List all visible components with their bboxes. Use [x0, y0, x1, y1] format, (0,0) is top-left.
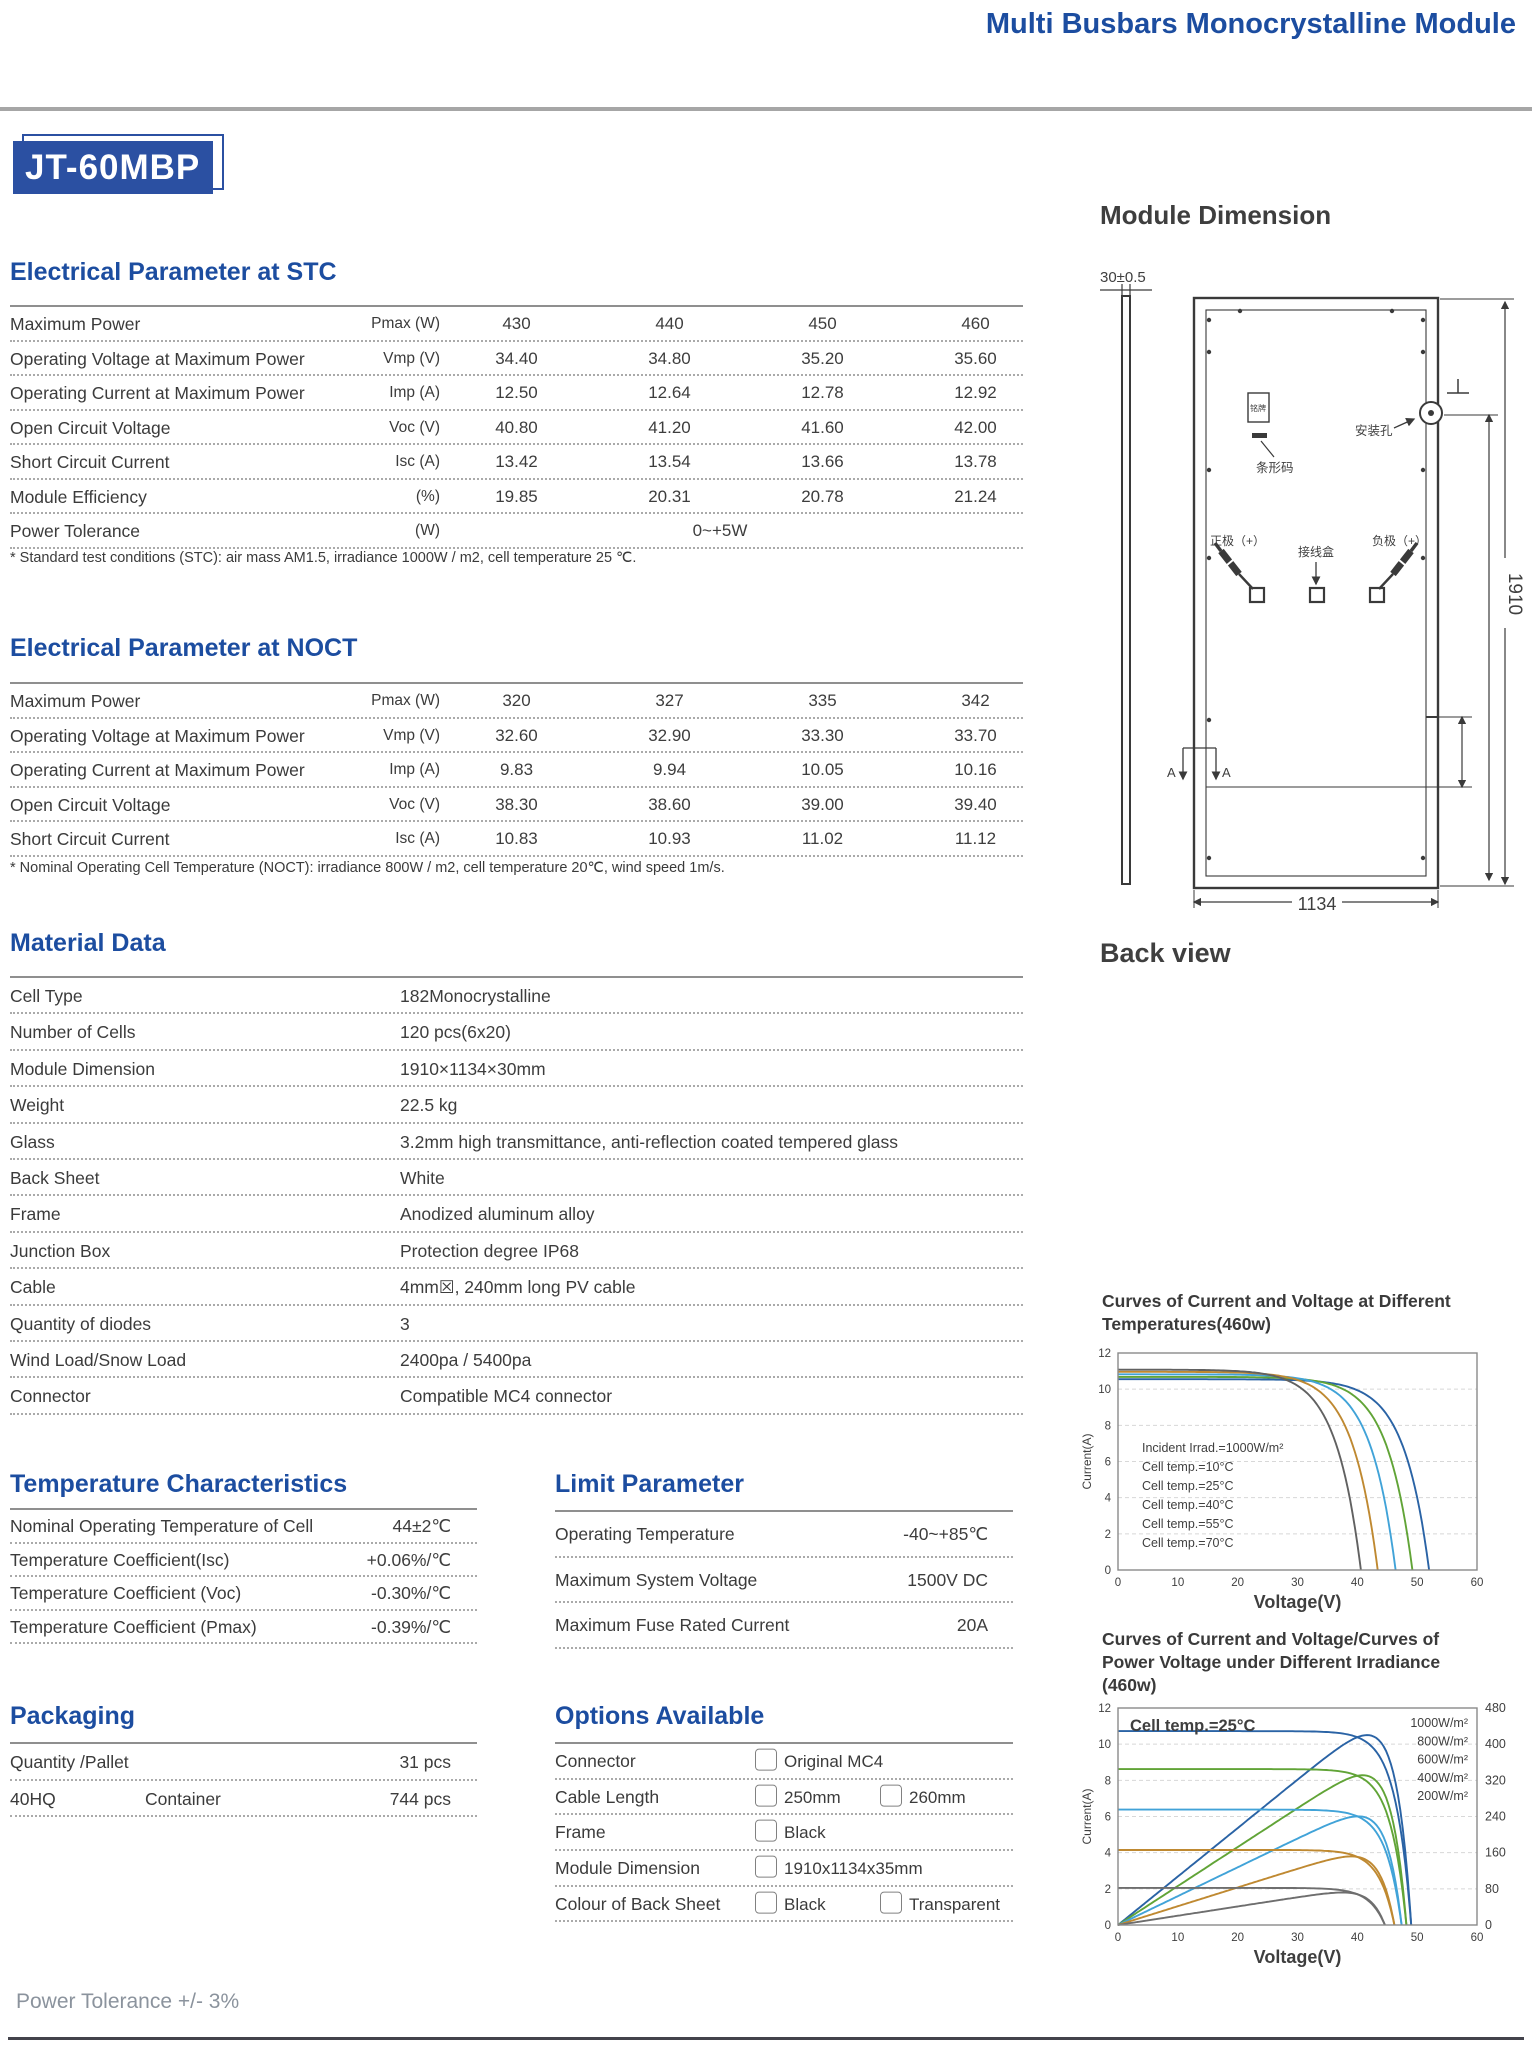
stc-row: Short Circuit CurrentIsc (A)13.4213.5413… [10, 445, 1023, 480]
param-value: 10.05 [746, 753, 899, 788]
param-value: 35.60 [899, 342, 1052, 377]
param-label: Open Circuit Voltage [10, 788, 171, 823]
chart-text: Voltage(V) [1254, 1947, 1342, 1967]
svg-text:A: A [1167, 765, 1176, 780]
param-symbol: Voc (V) [310, 788, 440, 823]
section-heading-limit: Limit Parameter [555, 1470, 744, 1499]
chart-text: 8 [1105, 1420, 1111, 1432]
limit-row: Maximum Fuse Rated Current20A [555, 1603, 1013, 1649]
param-label: Operating Current at Maximum Power [10, 376, 305, 411]
chart-text: 800W/m² [1417, 1734, 1468, 1748]
chart-text: 50 [1411, 1577, 1424, 1589]
packaging-table: Quantity /Pallet31 pcs40HQContainer744 p… [10, 1742, 477, 1817]
param-symbol: Pmax (W) [310, 684, 440, 719]
temperature-label: Temperature Coefficient (Voc) [10, 1577, 241, 1611]
packaging-label: 40HQ [10, 1781, 56, 1818]
param-symbol: Vmp (V) [310, 342, 440, 377]
chart-text: 600W/m² [1417, 1753, 1468, 1767]
chart-text: 10 [1171, 1932, 1184, 1944]
temperature-row: Temperature Coefficient(Isc)+0.06%/℃ [10, 1544, 477, 1578]
param-value: 19.85 [440, 480, 593, 515]
param-value: 41.20 [593, 411, 746, 446]
chart-text: 160 [1485, 1846, 1506, 1860]
option-label: Connector [555, 1744, 636, 1780]
temperature-value: -0.39%/℃ [371, 1611, 451, 1645]
stc-tolerance-row: Power Tolerance(W)0~+5W [10, 514, 1023, 549]
material-row: Module Dimension1910×1134×30mm [10, 1051, 1023, 1087]
param-value: 41.60 [746, 411, 899, 446]
param-value: 440 [593, 307, 746, 342]
param-value: 20.31 [593, 480, 746, 515]
power-tolerance-note: Power Tolerance +/- 3% [16, 1990, 239, 2014]
param-label: Short Circuit Current [10, 445, 170, 480]
param-value: 11.02 [746, 822, 899, 857]
temperature-value: 44±2℃ [393, 1510, 451, 1544]
limit-table: Operating Temperature-40~+85℃Maximum Sys… [555, 1510, 1013, 1649]
param-value: 9.94 [593, 753, 746, 788]
section-heading-packaging: Packaging [10, 1702, 135, 1731]
param-value: 430 [440, 307, 593, 342]
back-view-label: Back view [1100, 938, 1232, 968]
noct-footnote: * Nominal Operating Cell Temperature (NO… [10, 860, 725, 876]
param-value: 12.64 [593, 376, 746, 411]
param-value: 20.78 [746, 480, 899, 515]
section-a-marks: A A [1167, 748, 1231, 780]
checkbox-cable-length-2[interactable] [880, 1784, 902, 1806]
header-divider [0, 107, 1532, 111]
chart-text: 0 [1115, 1577, 1121, 1589]
param-label: Short Circuit Current [10, 822, 170, 857]
chart-text: Cell temp.=25°C [1142, 1479, 1234, 1493]
param-value: 460 [899, 307, 1052, 342]
module-outline [1194, 298, 1438, 888]
temperature-label: Temperature Coefficient (Pmax) [10, 1611, 257, 1645]
footer-divider [8, 2037, 1524, 2040]
chart2-title: Curves of Current and Voltage/Curves ofP… [1102, 1628, 1512, 1697]
model-badge: JT-60MBP [13, 141, 213, 194]
param-value: 13.54 [593, 445, 746, 480]
chart-text: Cell temp.=55°C [1142, 1517, 1234, 1531]
options-table: ConnectorOriginal MC4Cable Length250mm26… [555, 1742, 1013, 1922]
chart-text: 10 [1098, 1739, 1111, 1751]
noct-row: Open Circuit VoltageVoc (V)38.3038.6039.… [10, 788, 1023, 823]
options-row: ConnectorOriginal MC4 [555, 1744, 1013, 1780]
section-heading-noct: Electrical Parameter at NOCT [10, 634, 357, 663]
packaging-row: Quantity /Pallet31 pcs [10, 1744, 477, 1781]
stc-row: Operating Current at Maximum PowerImp (A… [10, 376, 1023, 411]
param-symbol: Pmax (W) [310, 307, 440, 342]
chart-text: 40 [1351, 1932, 1364, 1944]
param-label: Module Efficiency [10, 480, 147, 515]
param-value: 11.12 [899, 822, 1052, 857]
packaging-value: 31 pcs [399, 1744, 451, 1781]
param-value: 0~+5W [555, 514, 885, 549]
chart-text: 10 [1171, 1577, 1184, 1589]
limit-value: 20A [957, 1603, 988, 1649]
chart-text: 80 [1485, 1882, 1499, 1896]
param-value: 32.90 [593, 719, 746, 754]
param-label: Open Circuit Voltage [10, 411, 171, 446]
noct-row: Short Circuit CurrentIsc (A)10.8310.9311… [10, 822, 1023, 857]
chart-text: 10 [1098, 1384, 1111, 1396]
chart-text: 0 [1115, 1932, 1121, 1944]
chart-text: Current(A) [1080, 1788, 1094, 1844]
module-side-profile [1122, 296, 1130, 884]
param-symbol: (%) [310, 480, 440, 515]
param-symbol: Isc (A) [310, 445, 440, 480]
material-label: Cable [10, 1269, 56, 1305]
material-label: Back Sheet [10, 1160, 100, 1196]
junction-box-port-1 [1250, 588, 1264, 602]
options-row: FrameBlack [555, 1815, 1013, 1851]
param-label: Maximum Power [10, 684, 140, 719]
stc-row: Open Circuit VoltageVoc (V)40.8041.2041.… [10, 411, 1023, 446]
packaging-row: 40HQContainer744 pcs [10, 1781, 477, 1818]
chart-text: 320 [1485, 1773, 1506, 1787]
material-row: Wind Load/Snow Load2400pa / 5400pa [10, 1342, 1023, 1378]
material-value: Compatible MC4 connector [400, 1378, 612, 1414]
material-row: ConnectorCompatible MC4 connector [10, 1378, 1023, 1414]
stc-row: Maximum PowerPmax (W)430440450460 [10, 307, 1023, 342]
limit-value: 1500V DC [907, 1558, 988, 1604]
stc-row: Module Efficiency(%)19.8520.3120.7821.24 [10, 480, 1023, 515]
stc-row: Operating Voltage at Maximum PowerVmp (V… [10, 342, 1023, 377]
chart-text: 2 [1105, 1529, 1111, 1541]
iv-curve [1118, 1769, 1406, 1925]
param-symbol: Imp (A) [310, 376, 440, 411]
option-choice: 1910x1134x35mm [784, 1851, 923, 1887]
param-value: 39.00 [746, 788, 899, 823]
section-heading-options: Options Available [555, 1702, 764, 1731]
param-value: 13.42 [440, 445, 593, 480]
packaging-sublabel: Container [145, 1781, 221, 1818]
param-value: 34.80 [593, 342, 746, 377]
power-curve [1118, 1893, 1385, 1926]
svg-text:A: A [1222, 765, 1231, 780]
noct-row: Operating Current at Maximum PowerImp (A… [10, 753, 1023, 788]
param-value: 35.20 [746, 342, 899, 377]
packaging-value: 744 pcs [390, 1781, 451, 1818]
param-value: 38.30 [440, 788, 593, 823]
chart1-title-line: Temperatures(460w) [1102, 1313, 1502, 1336]
material-label: Weight [10, 1087, 64, 1123]
material-row: FrameAnodized aluminum alloy [10, 1196, 1023, 1232]
checkbox-frame-1[interactable] [755, 1820, 777, 1842]
option-choice: Black [784, 1887, 826, 1923]
chart1-title-line: Curves of Current and Voltage at Differe… [1102, 1290, 1502, 1313]
limit-label: Maximum Fuse Rated Current [555, 1603, 789, 1649]
chart-text: 240 [1485, 1810, 1506, 1824]
chart-text: 0 [1485, 1918, 1492, 1932]
chart-text: 30 [1291, 1577, 1304, 1589]
option-choice: Original MC4 [784, 1744, 883, 1780]
mounting-hole-label: 安装孔 [1355, 423, 1393, 438]
param-value: 9.83 [440, 753, 593, 788]
temperature-label: Nominal Operating Temperature of Cell [10, 1510, 313, 1544]
chart-text: 12 [1098, 1703, 1111, 1715]
temperature-value: -0.30%/℃ [371, 1577, 451, 1611]
param-label: Operating Current at Maximum Power [10, 753, 305, 788]
param-value: 33.70 [899, 719, 1052, 754]
param-symbol: Vmp (V) [310, 719, 440, 754]
param-value: 33.30 [746, 719, 899, 754]
material-row: Glass3.2mm high transmittance, anti-refl… [10, 1124, 1023, 1160]
chart-text: Cell temp.=70°C [1142, 1536, 1234, 1550]
param-symbol: (W) [310, 514, 440, 549]
material-label: Glass [10, 1124, 55, 1160]
param-label: Operating Voltage at Maximum Power [10, 342, 305, 377]
checkbox-connector-1[interactable] [755, 1749, 777, 1771]
chart-text: 6 [1105, 1457, 1111, 1469]
material-row: Cable4mm☒, 240mm long PV cable [10, 1269, 1023, 1305]
material-label: Number of Cells [10, 1014, 135, 1050]
param-value: 10.16 [899, 753, 1052, 788]
param-value: 10.83 [440, 822, 593, 857]
chart-text: 480 [1485, 1701, 1506, 1715]
checkbox-cable-length-1[interactable] [755, 1784, 777, 1806]
param-label: Maximum Power [10, 307, 140, 342]
option-choice: 250mm [784, 1780, 841, 1816]
material-value: Anodized aluminum alloy [400, 1196, 595, 1232]
module-inner-frame [1206, 310, 1426, 876]
option-label: Module Dimension [555, 1851, 700, 1887]
positive-connector [1215, 543, 1253, 589]
param-value: 450 [746, 307, 899, 342]
chart2-title-line: Power Voltage under Different Irradiance [1102, 1651, 1512, 1674]
chart-text: 400W/m² [1417, 1771, 1468, 1785]
chart-text: 8 [1105, 1775, 1111, 1787]
chart-text: 60 [1471, 1577, 1484, 1589]
material-label: Quantity of diodes [10, 1306, 151, 1342]
material-value: Protection degree IP68 [400, 1233, 579, 1269]
option-choice: Transparent [909, 1887, 1000, 1923]
param-value: 10.93 [593, 822, 746, 857]
param-value: 320 [440, 684, 593, 719]
chart-text: Voltage(V) [1254, 1592, 1342, 1612]
iv-irradiance-chart: 0246810120102030405060080160240320400480… [1060, 1695, 1532, 1975]
param-value: 38.60 [593, 788, 746, 823]
negative-connector [1379, 543, 1417, 589]
param-value: 12.78 [746, 376, 899, 411]
option-label: Frame [555, 1815, 606, 1851]
option-label: Colour of Back Sheet [555, 1887, 720, 1923]
checkbox-colour-of-back-sheet-2[interactable] [880, 1891, 902, 1913]
options-row: Cable Length250mm260mm [555, 1780, 1013, 1816]
chart2-title-line: Curves of Current and Voltage/Curves of [1102, 1628, 1512, 1651]
stc-footnote: * Standard test conditions (STC): air ma… [10, 550, 636, 566]
material-row: Quantity of diodes3 [10, 1306, 1023, 1342]
section-heading-material: Material Data [10, 929, 166, 958]
nameplate-label: 铭牌 [1250, 403, 1266, 413]
height-dimension-label: 1910 [1504, 573, 1525, 615]
material-label: Connector [10, 1378, 91, 1414]
param-value: 342 [899, 684, 1052, 719]
junction-box-label: 接线盒 [1298, 544, 1334, 559]
chart2-title-line: (460w) [1102, 1674, 1512, 1697]
noct-row: Operating Voltage at Maximum PowerVmp (V… [10, 719, 1023, 754]
junction-box-port-2 [1310, 588, 1324, 602]
chart-text: 200W/m² [1417, 1789, 1468, 1803]
checkbox-module-dimension-1[interactable] [755, 1856, 777, 1878]
param-value: 42.00 [899, 411, 1052, 446]
chart-text: 60 [1471, 1932, 1484, 1944]
chart-text: 50 [1411, 1932, 1424, 1944]
param-value: 335 [746, 684, 899, 719]
material-value: 3.2mm high transmittance, anti-reflectio… [400, 1124, 898, 1160]
chart-text: Incident Irrad.=1000W/m² [1142, 1441, 1283, 1455]
negative-pole-label: 负极（+） [1372, 534, 1427, 548]
checkbox-colour-of-back-sheet-1[interactable] [755, 1891, 777, 1913]
section-heading-stc: Electrical Parameter at STC [10, 258, 337, 287]
thickness-dimension-label: 30±0.5 [1100, 269, 1146, 286]
chart-text: Cell temp.=10°C [1142, 1460, 1234, 1474]
options-row: Colour of Back SheetBlackTransparent [555, 1887, 1013, 1923]
material-value: 4mm☒, 240mm long PV cable [400, 1269, 636, 1305]
barcode-label: 条形码 [1256, 461, 1294, 475]
material-table: Cell Type182MonocrystallineNumber of Cel… [10, 976, 1023, 1415]
barcode-mark [1252, 433, 1267, 438]
material-row: Weight22.5 kg [10, 1087, 1023, 1123]
material-row: Junction BoxProtection degree IP68 [10, 1233, 1023, 1269]
iv-temperature-chart: 0246810120102030405060Voltage(V)Current(… [1060, 1340, 1532, 1625]
chart1-title: Curves of Current and Voltage at Differe… [1102, 1290, 1502, 1336]
chart-text: 40 [1351, 1577, 1364, 1589]
param-value: 12.50 [440, 376, 593, 411]
param-value: 39.40 [899, 788, 1052, 823]
packaging-label: Quantity /Pallet [10, 1744, 129, 1781]
temperature-table: Nominal Operating Temperature of Cell44±… [10, 1508, 477, 1644]
param-value: 327 [593, 684, 746, 719]
param-value: 40.80 [440, 411, 593, 446]
limit-row: Operating Temperature-40~+85℃ [555, 1512, 1013, 1558]
material-label: Cell Type [10, 978, 83, 1014]
junction-box-port-3 [1370, 588, 1384, 602]
param-value: 21.24 [899, 480, 1052, 515]
datasheet-page: Multi Busbars Monocrystalline Module JT-… [0, 0, 1532, 2048]
temperature-label: Temperature Coefficient(Isc) [10, 1544, 230, 1578]
chart-text: 1000W/m² [1410, 1716, 1468, 1730]
param-label: Power Tolerance [10, 514, 140, 549]
stc-table: Maximum PowerPmax (W)430440450460Operati… [10, 305, 1023, 549]
material-label: Junction Box [10, 1233, 110, 1269]
width-dimension-label: 1134 [1298, 894, 1337, 914]
chart-text: 2 [1105, 1884, 1111, 1896]
param-symbol: Imp (A) [310, 753, 440, 788]
material-label: Frame [10, 1196, 61, 1232]
material-row: Cell Type182Monocrystalline [10, 978, 1023, 1014]
material-row: Number of Cells120 pcs(6x20) [10, 1014, 1023, 1050]
chart-text: Cell temp.=25°C [1130, 1717, 1255, 1735]
option-choice: Black [784, 1815, 826, 1851]
chart-text: 0 [1105, 1920, 1111, 1932]
module-dimension-drawing: 30±0.5 铭牌 条形码 [1060, 190, 1532, 990]
option-label: Cable Length [555, 1780, 659, 1816]
temperature-value: +0.06%/℃ [367, 1544, 451, 1578]
section-heading-temperature: Temperature Characteristics [10, 1470, 347, 1499]
material-value: 120 pcs(6x20) [400, 1014, 511, 1050]
chart-text: 4 [1105, 1493, 1112, 1505]
temperature-row: Nominal Operating Temperature of Cell44±… [10, 1510, 477, 1544]
material-value: 22.5 kg [400, 1087, 457, 1123]
chart-text: 12 [1098, 1348, 1111, 1360]
noct-table: Maximum PowerPmax (W)320327335342Operati… [10, 682, 1023, 857]
param-value: 34.40 [440, 342, 593, 377]
chart-text: 4 [1105, 1848, 1112, 1860]
chart-text: Cell temp.=40°C [1142, 1498, 1234, 1512]
iv-curve [1118, 1810, 1402, 1925]
option-choice: 260mm [909, 1780, 966, 1816]
param-label: Operating Voltage at Maximum Power [10, 719, 305, 754]
material-label: Module Dimension [10, 1051, 155, 1087]
material-row: Back SheetWhite [10, 1160, 1023, 1196]
param-symbol: Voc (V) [310, 411, 440, 446]
limit-value: -40~+85℃ [903, 1512, 988, 1558]
frame-dots [1207, 309, 1425, 860]
limit-row: Maximum System Voltage1500V DC [555, 1558, 1013, 1604]
chart-text: 6 [1105, 1812, 1111, 1824]
param-symbol: Isc (A) [310, 822, 440, 857]
limit-label: Maximum System Voltage [555, 1558, 757, 1604]
chart-text: 20 [1231, 1577, 1244, 1589]
chart-text: Current(A) [1080, 1433, 1094, 1489]
chart-text: 400 [1485, 1737, 1506, 1751]
param-value: 13.66 [746, 445, 899, 480]
param-value: 12.92 [899, 376, 1052, 411]
chart-text: 30 [1291, 1932, 1304, 1944]
material-value: 1910×1134×30mm [400, 1051, 546, 1087]
chart-text: 20 [1231, 1932, 1244, 1944]
options-row: Module Dimension1910x1134x35mm [555, 1851, 1013, 1887]
page-title: Multi Busbars Monocrystalline Module [986, 8, 1516, 41]
material-value: 182Monocrystalline [400, 978, 551, 1014]
material-value: 3 [400, 1306, 410, 1342]
limit-label: Operating Temperature [555, 1512, 735, 1558]
chart-text: 0 [1105, 1565, 1111, 1577]
material-value: White [400, 1160, 445, 1196]
temperature-row: Temperature Coefficient (Pmax)-0.39%/℃ [10, 1611, 477, 1645]
param-value: 32.60 [440, 719, 593, 754]
param-value: 13.78 [899, 445, 1052, 480]
material-value: 2400pa / 5400pa [400, 1342, 531, 1378]
temperature-row: Temperature Coefficient (Voc)-0.30%/℃ [10, 1577, 477, 1611]
noct-row: Maximum PowerPmax (W)320327335342 [10, 684, 1023, 719]
material-label: Wind Load/Snow Load [10, 1342, 186, 1378]
